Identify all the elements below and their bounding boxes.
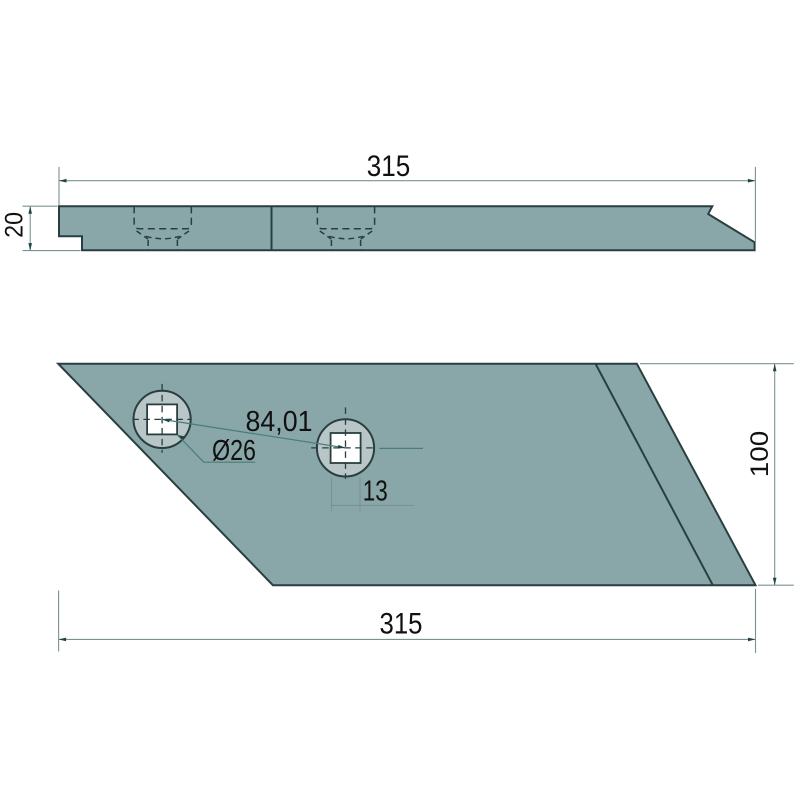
- svg-text:315: 315: [367, 150, 411, 183]
- svg-text:Ø26: Ø26: [212, 435, 256, 467]
- svg-text:20: 20: [1, 212, 29, 238]
- svg-text:100: 100: [746, 431, 774, 478]
- svg-text:84,01: 84,01: [246, 406, 313, 438]
- svg-text:13: 13: [363, 476, 388, 508]
- svg-text:315: 315: [380, 608, 423, 641]
